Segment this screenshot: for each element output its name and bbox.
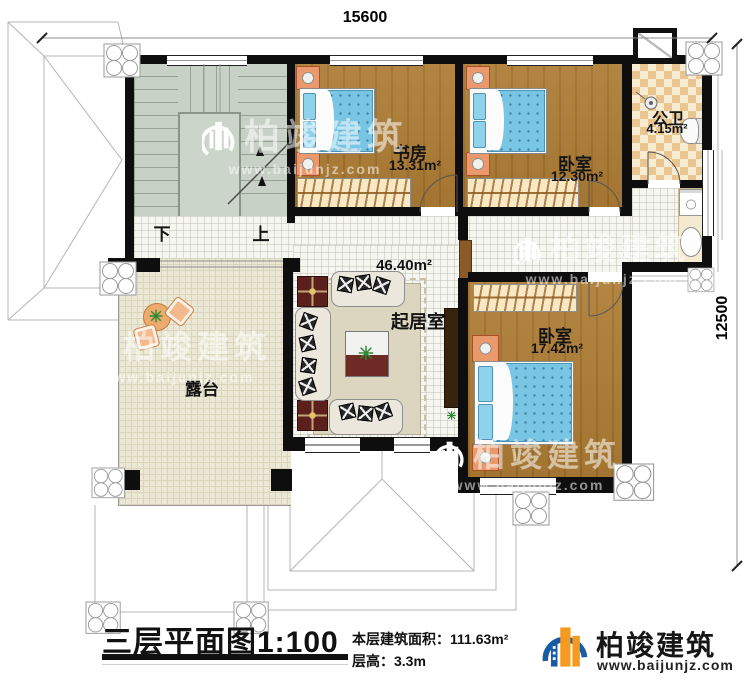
bedroom-top-pillow [473, 93, 486, 120]
plant-icon [148, 308, 164, 324]
title-underline-thin [102, 664, 348, 665]
sofa-cushion [357, 405, 373, 421]
floor-plan: 15600 12500 书房 13.31m² 卧室 12.30m² 公卫 4.1… [0, 0, 750, 693]
stairs-down-label: 下 [154, 220, 171, 245]
room-label-terrace: 露台 [185, 375, 219, 400]
side-table [297, 400, 328, 431]
washbasin-icon [680, 227, 702, 257]
wall-stairs-study [287, 55, 295, 223]
stair-treads-top [178, 64, 237, 112]
wall-laundry-bottom [622, 262, 712, 272]
wall-bedroom-bottom-bottom [556, 477, 632, 493]
wall-rooms-bottom [620, 207, 632, 216]
stair-landing [178, 112, 241, 219]
wall-rooms-bottom [457, 207, 589, 216]
wall-living-bottom [283, 437, 305, 451]
sofa-cushion [299, 335, 317, 353]
study-nightstand-top [296, 66, 320, 90]
wall-rooms-bottom [287, 207, 421, 216]
watermark-logo-icon [85, 328, 115, 366]
study-bed-sheet [317, 90, 334, 150]
stair-treads-left [134, 64, 178, 214]
sofa-cushion [337, 276, 354, 293]
plant-icon [357, 344, 375, 362]
bedroom-top-nightstand-top [466, 66, 490, 90]
room-area-study: 13.31m² [389, 157, 441, 173]
window [394, 437, 430, 453]
wall-bath-bottom [632, 180, 648, 188]
chimney-flue [633, 28, 677, 63]
washing-machine-icon [679, 189, 703, 216]
stairs-up-label: 上 [253, 220, 270, 245]
stair-treads-right [238, 64, 287, 204]
window [305, 437, 360, 453]
study-bed-pillow [303, 121, 316, 148]
bedroom-bottom-sheet [493, 363, 513, 440]
wall-terrace-top [283, 258, 300, 272]
bedroom-bottom-nightstand-top [472, 335, 499, 362]
wall-living-bottom [360, 437, 394, 451]
wall-living-bedroom [458, 278, 468, 493]
room-area-bathroom: 4.15m² [646, 121, 687, 136]
title-underline [102, 654, 348, 660]
dimension-right: 12500 [714, 283, 734, 353]
wall-study-bedroom [455, 55, 463, 216]
wall-bedroom-bottom-right [622, 272, 632, 493]
bedroom-bottom-wardrobe [473, 284, 577, 312]
wall-bedroom-bottom-top [468, 272, 588, 282]
room-area-living: 46.40m² [376, 257, 432, 274]
window [480, 477, 556, 495]
wall-living-bottom [430, 437, 468, 451]
window [702, 150, 714, 236]
bedroom-bottom-pillow [478, 404, 493, 440]
floor-area-text: 本层建筑面积：111.63m² [352, 629, 508, 649]
dimension-top: 15600 [320, 9, 410, 27]
window [330, 55, 423, 66]
terrace-post [118, 470, 140, 490]
sofa-cushion [300, 357, 317, 374]
study-wardrobe [297, 178, 411, 209]
plant-icon [446, 410, 457, 421]
room-area-bedroom-top: 12.30m² [551, 168, 603, 184]
wall-bedroom-bath [622, 55, 632, 216]
terrace-post [271, 469, 292, 491]
sofa-cushion [355, 274, 372, 291]
window [507, 55, 593, 66]
side-table [297, 276, 328, 307]
bedroom-top-sheet [487, 90, 504, 150]
study-bed-pillow [303, 93, 316, 120]
brand-logo-icon [536, 620, 592, 674]
wall-bedroom-bottom-bottom [458, 477, 480, 493]
floor-height-text: 层高：3.3m [352, 651, 426, 671]
bedroom-top-pillow [473, 121, 486, 148]
room-label-living: 起居室 [391, 308, 445, 334]
wall-terrace-top [108, 258, 160, 272]
bedroom-bottom-nightstand-bottom [472, 444, 499, 471]
room-area-bedroom-bottom: 17.42m² [531, 340, 583, 356]
wall-living-left [283, 272, 293, 451]
sofa-cushion [339, 403, 357, 421]
wall-living-bedroom [458, 216, 468, 240]
window [167, 55, 247, 66]
bedroom-top-nightstand-bottom [466, 152, 490, 176]
bedroom-bottom-pillow [478, 366, 493, 402]
study-nightstand-bottom [296, 152, 320, 176]
wall-left [125, 55, 134, 272]
brand-website: www.baijunjz.com [597, 657, 734, 673]
